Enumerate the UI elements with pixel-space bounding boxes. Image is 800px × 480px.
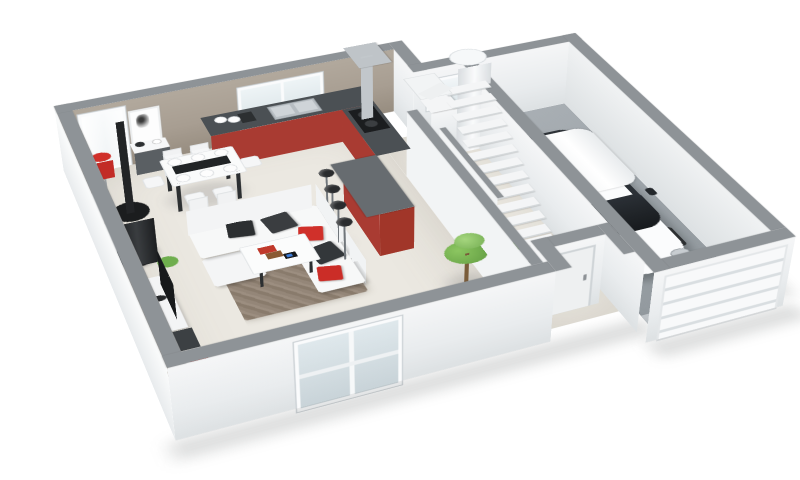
burner (363, 119, 379, 128)
cushion-black (225, 220, 255, 238)
sink-basin (271, 104, 296, 117)
tablet-screen (286, 254, 293, 258)
floorplan-render (0, 0, 800, 480)
picture-art (136, 113, 150, 128)
sink-basin (293, 100, 318, 112)
cushion-red (316, 265, 343, 282)
door-handle (583, 274, 587, 281)
bar-front-south (380, 206, 415, 256)
